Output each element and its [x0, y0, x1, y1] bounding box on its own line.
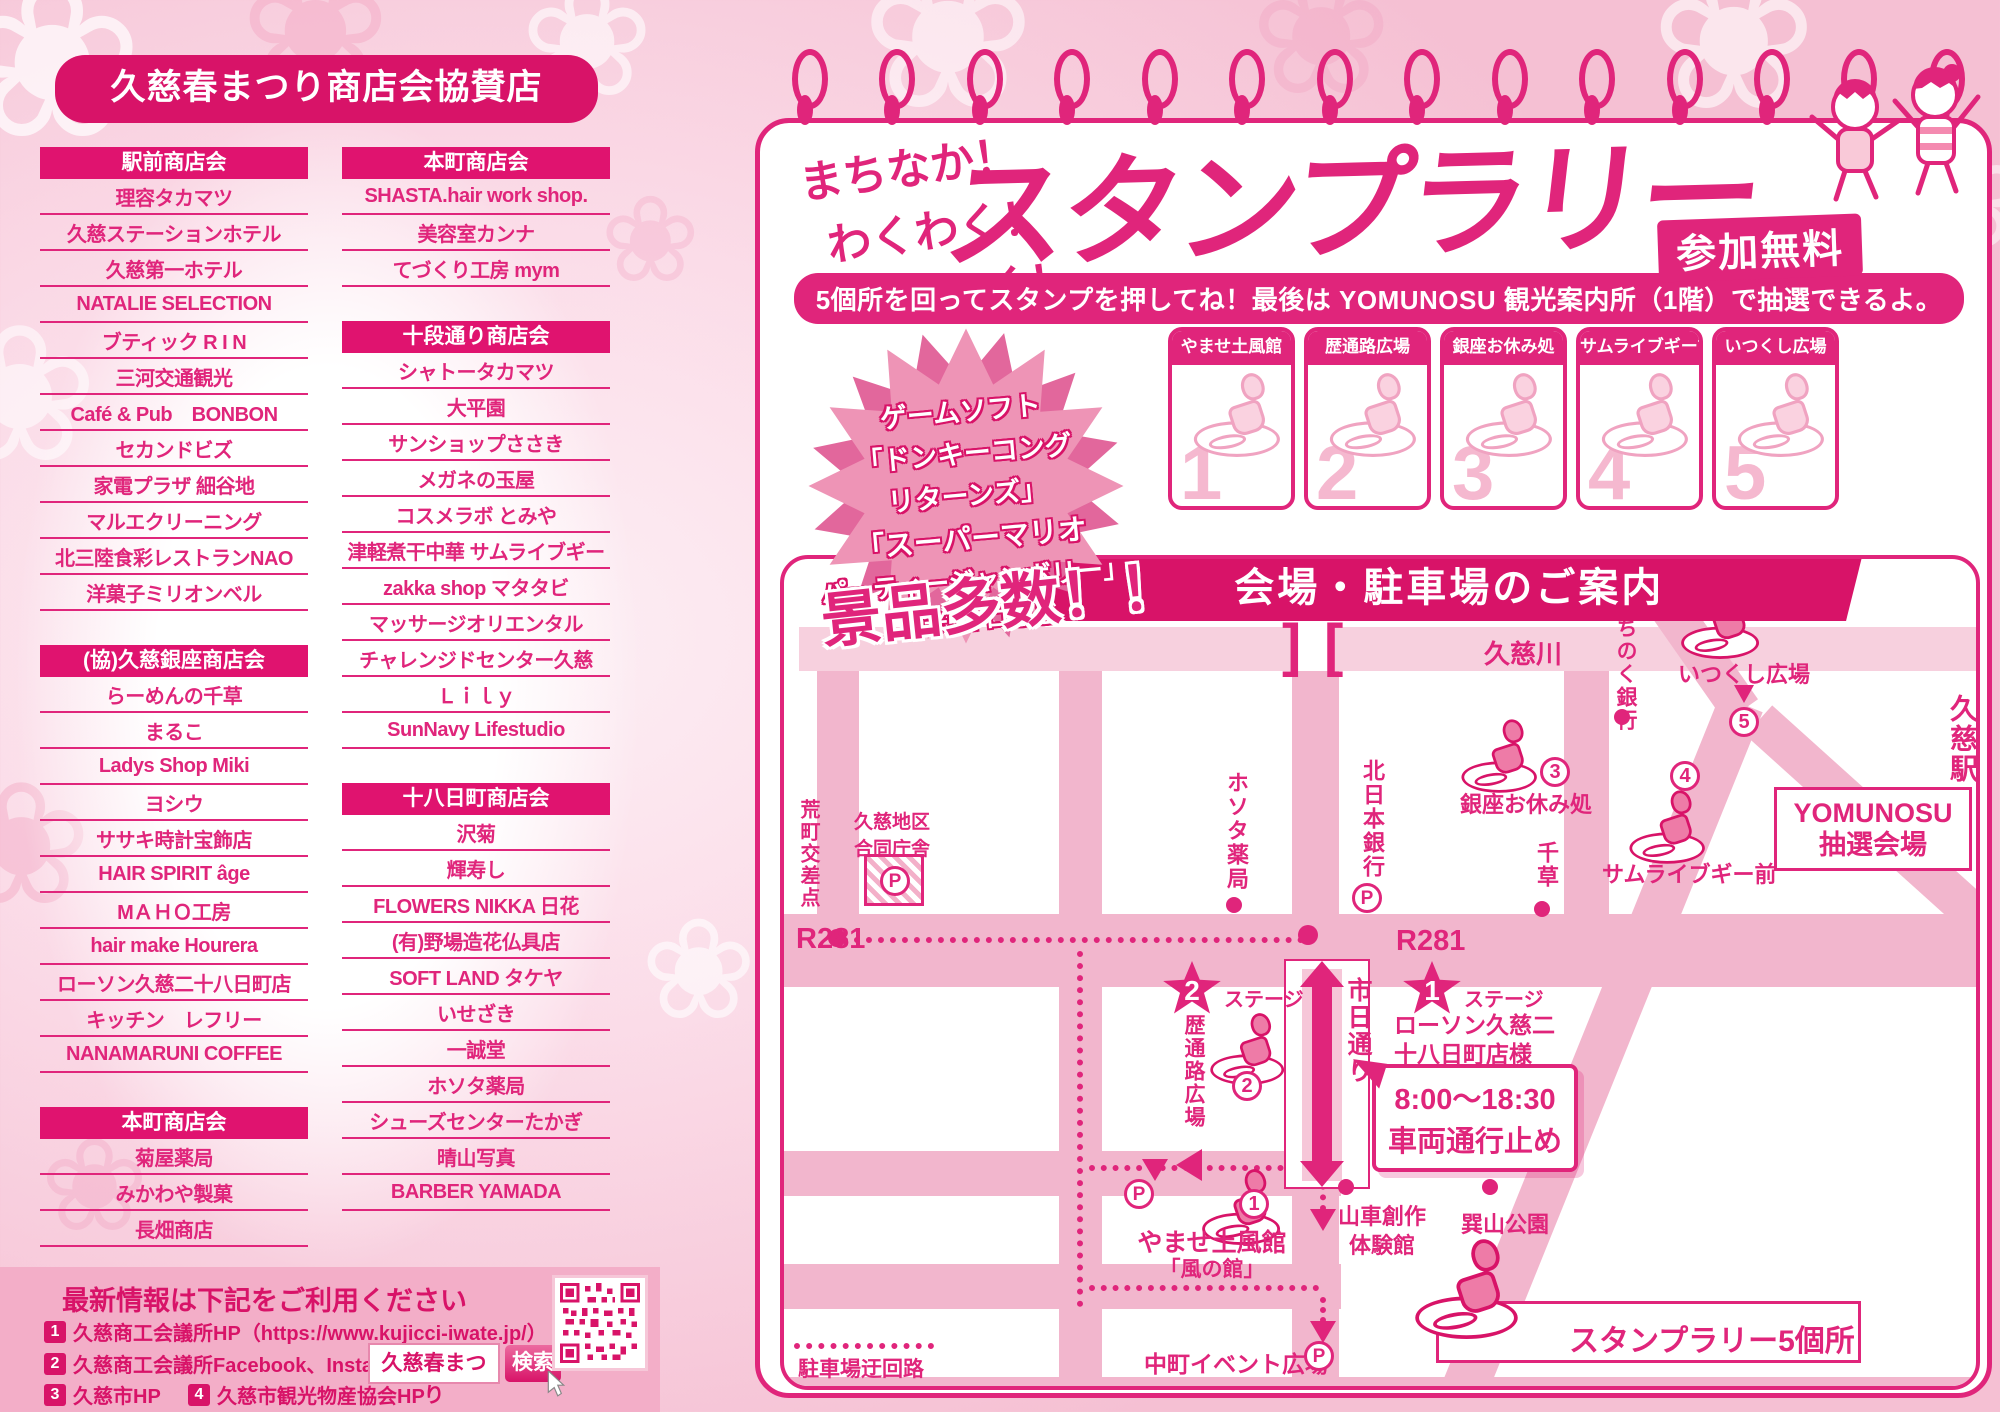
info-text: 久慈市HP	[73, 1380, 161, 1409]
number-badge: 2	[44, 1353, 66, 1375]
shop-item: HAIR SPIRIT âge	[40, 857, 308, 893]
shop-item: マルエクリーニング	[40, 503, 308, 539]
stamp-icon	[1328, 371, 1423, 459]
shop-item: 輝寿し	[342, 851, 610, 887]
shop-item: 大平園	[342, 389, 610, 425]
qr-code	[552, 1275, 648, 1371]
spot-number-circle: 5	[1729, 707, 1759, 737]
shop-item: 一誠堂	[342, 1031, 610, 1067]
stamp-spot-cards: やませ土風館 1 歴通路広場 2 銀座お休み処 3	[1168, 327, 1839, 510]
poi-kitanihon-bank: 北日本銀行	[1356, 759, 1388, 879]
shop-item: シャトータカマツ	[342, 353, 610, 389]
stamp-spot-body: 3	[1444, 365, 1563, 510]
arrow-down-icon	[1300, 1161, 1344, 1187]
stamp-icon	[1736, 371, 1831, 459]
number-badge: 3	[44, 1384, 66, 1406]
route-arrow-icon	[1310, 1321, 1336, 1343]
page-title: スタンプラリー	[937, 96, 1768, 294]
shop-item: 長畑商店	[40, 1211, 308, 1247]
stamp-spot-name: やませ土風館	[1172, 331, 1291, 365]
stamp-spot-card: 歴通路広場 2	[1304, 327, 1431, 510]
stamp-spot-card: やませ土風館 1	[1168, 327, 1295, 510]
stamp-spot-card: いつくし広場 5	[1712, 327, 1839, 510]
section-header: 本町商店会	[40, 1107, 308, 1139]
shop-item: メガネの玉屋	[342, 461, 610, 497]
poi-gov-office: 久慈地区合同庁舎	[846, 807, 938, 861]
section-header: (協)久慈銀座商店会	[40, 645, 308, 677]
shop-item: いせざき	[342, 995, 610, 1031]
river-label: 久慈川	[1484, 634, 1562, 671]
shop-item: セカンドビズ	[40, 431, 308, 467]
bridge-mark: [	[1324, 617, 1343, 675]
shop-item: キッチン レフリー	[40, 1001, 308, 1037]
shop-column-1: 駅前商店会 理容タカマツ久慈ステーションホテル久慈第一ホテルNATALIE SE…	[40, 147, 308, 1281]
poi-rekimichi: 歴通路広場	[1178, 1014, 1208, 1129]
info-text: 久慈商工会議所HP（https://www.kujicci-iwate.jp/）	[73, 1317, 547, 1346]
shop-item: ローソン久慈二十八日町店	[40, 965, 308, 1001]
shop-item: МＡＨＯ工房	[40, 893, 308, 929]
parking-icon: P	[1352, 883, 1382, 913]
section-header: 十段通り商店会	[342, 321, 610, 353]
info-line-3: 3 久慈市HP	[44, 1380, 161, 1409]
sakura-icon	[640, 900, 757, 1040]
route-dotted	[794, 1343, 934, 1349]
shop-item: Ladys Shop Miki	[40, 749, 308, 785]
shop-item: 晴山写真	[342, 1139, 610, 1175]
shop-column-2: 本町商店会 SHASTA.hair work shop.美容室カンナてづくり工房…	[342, 147, 610, 1245]
stamp-icon	[1464, 371, 1559, 459]
venue-map: ] [ 久慈川 会場・駐車場のご案内 荒町交差点 久慈地区合同庁舎	[780, 555, 1980, 1390]
number-badge: 4	[188, 1384, 210, 1406]
shop-item: 洋菓子ミリオンベル	[40, 575, 308, 611]
shop-item: Ｌｉｌｙ	[342, 677, 610, 713]
parking-icon: P	[880, 866, 910, 896]
shop-section-judan: 十段通り商店会 シャトータカマツ大平園サンショップささきメガネの玉屋コスメラボ …	[342, 321, 610, 749]
poi-aramachi-crossing: 荒町交差点	[794, 799, 823, 909]
stamp-icon	[1460, 717, 1543, 794]
lottery-line: YOMUNOSU	[1793, 797, 1952, 829]
stamp-spot-body: 1	[1172, 365, 1291, 510]
stamp-spot-card: サムライブギー前 4	[1576, 327, 1703, 510]
stamp-icon	[1192, 371, 1287, 459]
section-header: 本町商店会	[342, 147, 610, 179]
shop-section-ekimae: 駅前商店会 理容タカマツ久慈ステーションホテル久慈第一ホテルNATALIE SE…	[40, 147, 308, 611]
section-header: 十八日町商店会	[342, 783, 610, 815]
shop-list: 理容タカマツ久慈ステーションホテル久慈第一ホテルNATALIE SELECTIO…	[40, 179, 308, 611]
shop-item: みかわや製菓	[40, 1175, 308, 1211]
route-dotted	[842, 937, 1304, 943]
poi-hosota: ホソタ薬局	[1220, 771, 1252, 891]
stamp-spot-name: 歴通路広場	[1308, 331, 1427, 365]
info-line-4: 4 久慈市観光物産協会HP	[188, 1380, 425, 1409]
shop-item: 久慈ステーションホテル	[40, 215, 308, 251]
parking-icon: P	[1124, 1179, 1154, 1209]
road-aramachi	[817, 671, 859, 914]
shop-item: ササキ時計宝飾店	[40, 821, 308, 857]
road-bottom	[784, 1377, 1980, 1390]
shop-item: NATALIE SELECTION	[40, 287, 308, 323]
stamp-spot-body: 5	[1716, 365, 1835, 510]
shop-item: NANAMARUNI COFFEE	[40, 1037, 308, 1073]
parking-icon: P	[1304, 1341, 1334, 1371]
route-dotted	[1089, 1285, 1319, 1291]
stage-label: ステージ	[1224, 983, 1304, 1012]
stamp-icon	[1413, 1237, 1526, 1342]
shop-item: SOFT LAND タケヤ	[342, 959, 610, 995]
number-badge: 1	[44, 1321, 66, 1343]
shop-item: 北三陸食彩レストランNAO	[40, 539, 308, 575]
poi-dot	[1614, 709, 1630, 725]
shop-item: FLOWERS NIKKA 日花	[342, 887, 610, 923]
notice-time: 8:00〜18:30	[1386, 1076, 1564, 1118]
shop-section-ginza: (協)久慈銀座商店会 らーめんの千草まるこLadys Shop Mikiヨシウサ…	[40, 645, 308, 1073]
shop-item: 津軽煮干中華 サムライブギー	[342, 533, 610, 569]
shop-item: 菊屋薬局	[40, 1139, 308, 1175]
shop-list: 沢菊輝寿しFLOWERS NIKKA 日花(有)野場造花仏具店SOFT LAND…	[342, 815, 610, 1211]
lottery-line: 抽選会場	[1819, 829, 1927, 861]
kids-illustration	[1800, 47, 1990, 227]
route-dotted	[1320, 1297, 1326, 1323]
river-segment	[1329, 627, 1980, 671]
shop-item: シューズセンターたかぎ	[342, 1103, 610, 1139]
spot-number-circle: 4	[1670, 761, 1700, 791]
lottery-venue-box: YOMUNOSU 抽選会場	[1774, 787, 1972, 871]
route-arrow-icon	[1142, 1159, 1168, 1181]
shop-item: サンショップささき	[342, 425, 610, 461]
route-arrow-icon	[1176, 1149, 1202, 1181]
poi-dot	[1338, 1179, 1354, 1195]
poi-detour: 駐車場迂回路	[798, 1353, 924, 1383]
stamp-spot-card: 銀座お休み処 3	[1440, 327, 1567, 510]
shop-list: らーめんの千草まるこLadys Shop Mikiヨシウササキ時計宝飾店HAIR…	[40, 677, 308, 1073]
spot-number-circle: 2	[1232, 1071, 1262, 1101]
shop-item: ホソタ薬局	[342, 1067, 610, 1103]
info-text: 久慈市観光物産協会HP	[217, 1380, 425, 1409]
shop-list: 菊屋薬局みかわや製菓長畑商店	[40, 1139, 308, 1247]
poi-dot	[1226, 897, 1242, 913]
arrow-up-icon	[1300, 961, 1344, 987]
shop-item: BARBER YAMADA	[342, 1175, 610, 1211]
poi-dot	[1534, 901, 1550, 917]
poi-yamase-sub: 「風の館」	[1122, 1253, 1302, 1283]
info-line-1: 1 久慈商工会議所HP（https://www.kujicci-iwate.jp…	[44, 1317, 547, 1346]
notice-text: 車両通行止め	[1386, 1118, 1564, 1160]
info-title: 最新情報は下記をご利用ください	[62, 1279, 467, 1318]
shop-list: SHASTA.hair work shop.美容室カンナてづくり工房 mym	[342, 179, 610, 287]
shop-item: SHASTA.hair work shop.	[342, 179, 610, 215]
bridge-mark: ]	[1282, 617, 1301, 675]
shop-section-honcho-1: 本町商店会 菊屋薬局みかわや製菓長畑商店	[40, 1107, 308, 1247]
route-dotted	[1077, 951, 1083, 1307]
shop-item: 久慈第一ホテル	[40, 251, 308, 287]
section-header: 駅前商店会	[40, 147, 308, 179]
search-input[interactable]: 久慈春まつり	[370, 1345, 498, 1382]
shop-section-juhachinichi: 十八日町商店会 沢菊輝寿しFLOWERS NIKKA 日花(有)野場造花仏具店S…	[342, 783, 610, 1211]
shop-item: hair make Hourera	[40, 929, 308, 965]
shop-item: ヨシウ	[40, 785, 308, 821]
cursor-icon	[545, 1371, 567, 1397]
stamp-spot-name: いつくし広場	[1716, 331, 1835, 365]
shop-item: 美容室カンナ	[342, 215, 610, 251]
shop-item: zakka shop マタタビ	[342, 569, 610, 605]
road-r281	[784, 914, 1980, 987]
shop-section-honcho-2: 本町商店会 SHASTA.hair work shop.美容室カンナてづくり工房…	[342, 147, 610, 287]
shop-item: 理容タカマツ	[40, 179, 308, 215]
poi-dot	[1482, 1179, 1498, 1195]
poi-samurai-boogie: サムライブギー前	[1602, 857, 1802, 889]
poi-tatsuyama-park: 巽山公園	[1450, 1207, 1560, 1239]
shop-item: コスメラボ とみや	[342, 497, 610, 533]
shop-list: シャトータカマツ大平園サンショップささきメガネの玉屋コスメラボ とみや津軽煮干中…	[342, 353, 610, 749]
shop-item: ブティック R I N	[40, 323, 308, 359]
poi-kuji-station: 久慈駅	[1942, 694, 1980, 784]
shop-item: チャレンジドセンター久慈	[342, 641, 610, 677]
stamp-spot-body: 2	[1308, 365, 1427, 510]
legend-text: スタンプラリー5個所	[1569, 1316, 1855, 1360]
poi-lawson: ローソン久慈二十八日町店様	[1394, 1011, 1566, 1069]
poi-nakamachi: 中町イベント広場	[1144, 1345, 1328, 1379]
spot-number-circle: 3	[1540, 757, 1570, 787]
shop-item: てづくり工房 mym	[342, 251, 610, 287]
stamp-spot-name: 銀座お休み処	[1444, 331, 1563, 365]
stamp-rally-panel: まちなか！ わくわく！ てくてく！ スタンプラリー 参加無料 5個所を回ってスタ…	[755, 118, 1992, 1398]
stamp-spot-name: サムライブギー前	[1580, 331, 1699, 365]
shop-item: SunNavy Lifestudio	[342, 713, 610, 749]
shop-item: らーめんの千草	[40, 677, 308, 713]
road-label-r281: R281	[796, 923, 865, 956]
shop-item: Café & Pub BONBON	[40, 395, 308, 431]
stamp-icon	[1628, 788, 1711, 865]
shop-item: 三河交通観光	[40, 359, 308, 395]
stamp-icon	[1600, 371, 1695, 459]
pointer-arrow-icon	[1734, 685, 1754, 703]
poi-ginza: 銀座お休み処	[1460, 787, 1630, 819]
shop-item: 沢菊	[342, 815, 610, 851]
stage-label: ステージ	[1464, 983, 1544, 1012]
road-label-r281: R281	[1396, 925, 1465, 958]
stamp-spot-body: 4	[1580, 365, 1699, 510]
shop-item: (有)野場造花仏具店	[342, 923, 610, 959]
spot-number-circle: 1	[1239, 1189, 1269, 1219]
poi-chigusa: 千草	[1530, 841, 1562, 889]
info-band: 最新情報は下記をご利用ください 1 久慈商工会議所HP（https://www.…	[0, 1267, 660, 1412]
road-closed-notice: 8:00〜18:30 車両通行止め	[1372, 1064, 1578, 1172]
intersection-dot	[1298, 925, 1318, 945]
parking-gov: P	[864, 854, 924, 906]
arrow-shaft	[1312, 983, 1332, 1167]
shop-item: マッサージオリエンタル	[342, 605, 610, 641]
sponsor-list-title: 久慈春まつり商店会協賛店	[55, 55, 598, 123]
shop-item: まるこ	[40, 713, 308, 749]
shop-item: 家電プラザ 細谷地	[40, 467, 308, 503]
info-line-2: 2 久慈商工会議所Facebook、Instagram	[44, 1349, 422, 1378]
